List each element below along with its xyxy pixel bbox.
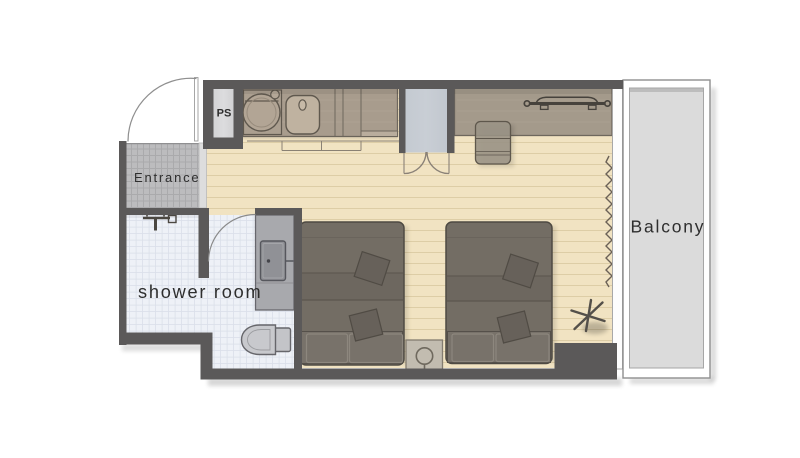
svg-text:Entrance: Entrance <box>134 170 200 185</box>
svg-text:Balcony: Balcony <box>631 217 706 237</box>
svg-text:PS: PS <box>217 108 232 120</box>
svg-text:shower room: shower room <box>138 282 262 302</box>
